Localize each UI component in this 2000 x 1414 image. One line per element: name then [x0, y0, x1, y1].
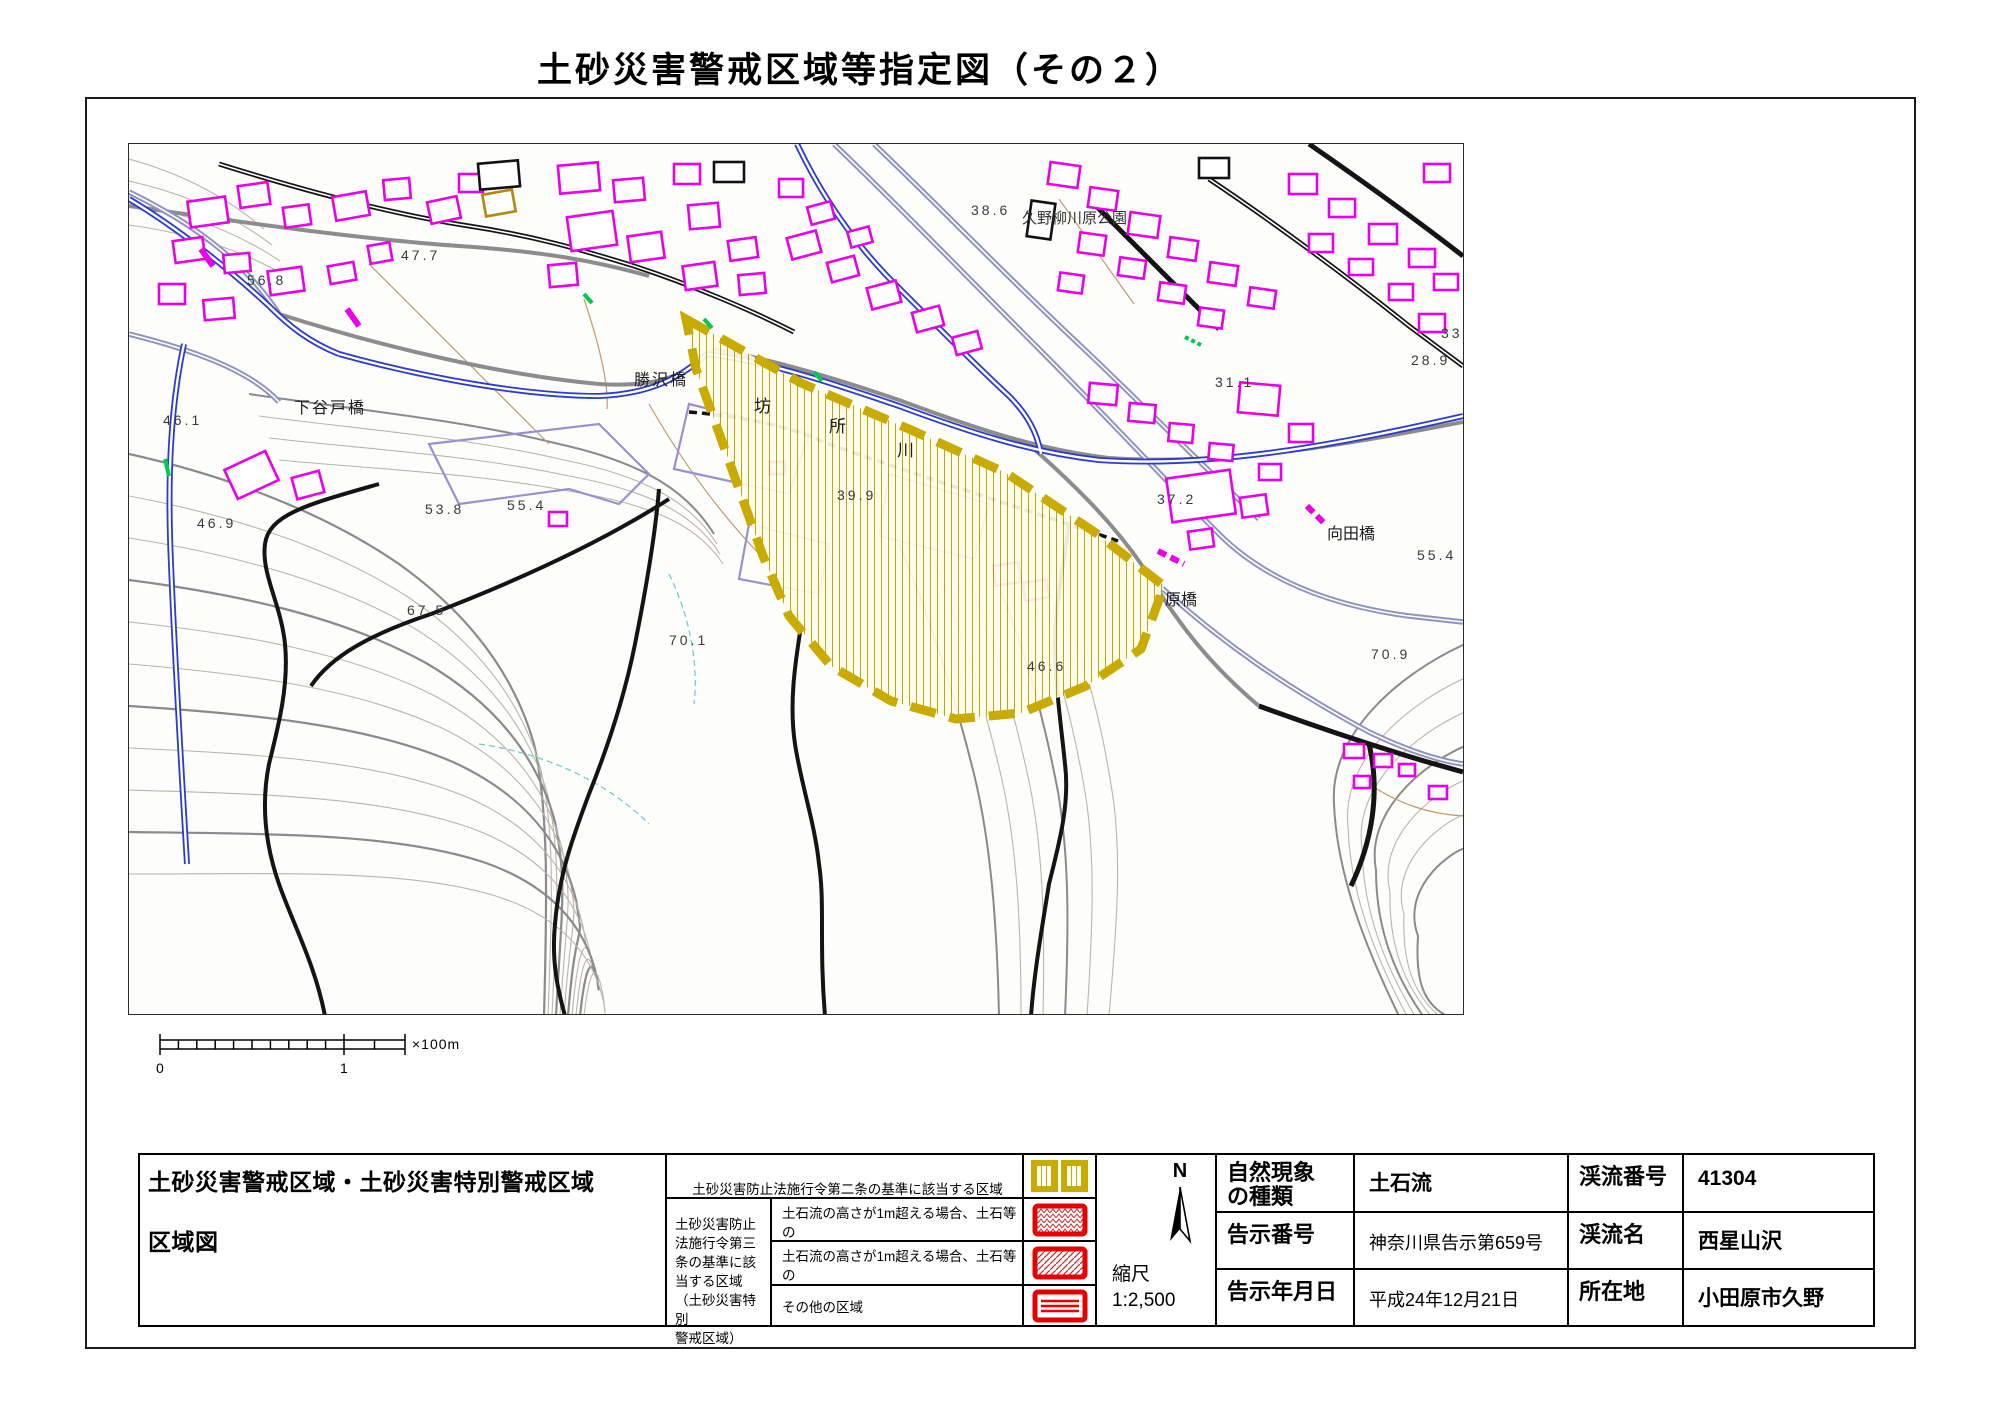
red-horizontal-swatch-icon	[1032, 1289, 1088, 1323]
map-label-river: 川	[897, 436, 914, 461]
scale-bar: 0 1 ×100m	[150, 1034, 490, 1082]
map-label-elev: 46.6	[1027, 658, 1066, 674]
map-label-elev: 55.4	[1417, 547, 1456, 563]
map-label-river: 所	[829, 412, 846, 437]
map-label-bridge: 下谷戸橋	[294, 394, 366, 418]
map-label-bridge: 勝沢橋	[634, 366, 688, 390]
field-value-phenomenon: 土石流	[1353, 1153, 1569, 1213]
legend-warning-zone-text: 土砂災害防止法施行令第二条の基準に該当する区域 （土砂災害警戒区域）	[665, 1153, 1024, 1199]
map-label-elev: 38.6	[971, 202, 1010, 218]
field-label-stream-name: 渓流名	[1567, 1211, 1684, 1270]
map-label-vert: 向田橋	[1327, 524, 1346, 545]
map-label-elev: 56.8	[247, 272, 286, 288]
yellow-hatch-swatch-icon	[1029, 1158, 1091, 1194]
legend-special-zone-group-label: 土砂災害防止 法施行令第三 条の基準に該 当する区域 （土砂災害特別 警戒区域）	[665, 1197, 772, 1327]
map-label-elev: 46.1	[163, 412, 202, 428]
map-label-elev: 47.7	[401, 247, 440, 263]
map-scale: 縮尺 1:2,500	[1112, 1262, 1212, 1314]
north-label: N	[1150, 1160, 1210, 1183]
map-label-elev: 67.5	[407, 602, 446, 618]
legend-swatch-red-crosshatch-cell	[1022, 1197, 1097, 1242]
field-value-notice-date: 平成24年12月21日	[1353, 1268, 1569, 1327]
legend-swatch-red-diagonal-cell	[1022, 1240, 1097, 1286]
map-label-elev: 70.9	[1371, 646, 1410, 662]
sheet-title-line1: 土砂災害警戒区域・土砂災害特別警戒区域	[148, 1163, 659, 1197]
map-label-park: 久野柳川原公園	[1022, 208, 1040, 229]
legend-swatch-yellow-hatch-cell	[1022, 1153, 1097, 1199]
field-label-stream-number: 渓流番号	[1567, 1153, 1684, 1213]
map-label-elev: 33.6	[1441, 325, 1464, 341]
map-label-river: 坊	[754, 392, 771, 417]
field-label-phenomenon: 自然現象 の種類	[1215, 1153, 1355, 1213]
field-label-notice-date: 告示年月日	[1215, 1268, 1355, 1327]
field-value-notice-number: 神奈川県告示第659号	[1353, 1211, 1569, 1270]
scale-value: 1:2,500	[1112, 1288, 1212, 1314]
map-label-elev: 28.9	[1411, 352, 1450, 368]
field-label-location: 所在地	[1567, 1268, 1684, 1327]
scale-label: 縮尺	[1112, 1262, 1212, 1288]
map-label-elev: 70.1	[669, 632, 708, 648]
north-arrow-icon	[1160, 1183, 1200, 1247]
topographic-map: 56.847.738.633.628.931.146.146.953.855.4…	[128, 143, 1464, 1015]
legend-row-under50kn-text: 土石流の高さが1m超える場合、土石等の 移動による力が50kN/㎡を超えない区域	[770, 1240, 1024, 1286]
page-title: 土砂災害警戒区域等指定図（その２）	[0, 42, 1720, 93]
map-sheet-title-cell: 土砂災害警戒区域・土砂災害特別警戒区域 区域図	[138, 1153, 667, 1327]
north-arrow: N	[1150, 1160, 1210, 1247]
red-diagonal-swatch-icon	[1032, 1246, 1088, 1280]
field-value-stream-number: 41304	[1682, 1153, 1875, 1213]
red-crosshatch-swatch-icon	[1032, 1203, 1088, 1237]
map-label-vert: 原橋	[1165, 590, 1184, 611]
map-label-elev: 31.1	[1215, 374, 1254, 390]
map-label-elev: 37.2	[1157, 491, 1196, 507]
field-value-location: 小田原市久野	[1682, 1268, 1875, 1327]
map-label-elev: 53.8	[425, 501, 464, 517]
sheet-title-line2: 区域図	[148, 1223, 659, 1257]
legend-row-over50kn-text: 土石流の高さが1m超える場合、土石等の 移動による力が50kN/㎡を超える区域	[770, 1197, 1024, 1242]
map-label-elev: 46.9	[197, 515, 236, 531]
map-label-elev: 39.9	[837, 487, 876, 503]
legend-row-other-area-text: その他の区域	[770, 1284, 1024, 1327]
scale-unit: ×100m	[412, 1036, 460, 1052]
field-label-notice-number: 告示番号	[1215, 1211, 1355, 1270]
scale-zero: 0	[156, 1060, 164, 1076]
legend-swatch-red-horizontal-cell	[1022, 1284, 1097, 1327]
scale-one: 1	[340, 1060, 348, 1076]
map-label-elev: 55.4	[507, 497, 546, 513]
document-page: { "title": "土砂災害警戒区域等指定図（その２）", "compass…	[0, 0, 2000, 1414]
field-value-stream-name: 西星山沢	[1682, 1211, 1875, 1270]
map-label-layer: 56.847.738.633.628.931.146.146.953.855.4…	[129, 144, 1463, 1014]
